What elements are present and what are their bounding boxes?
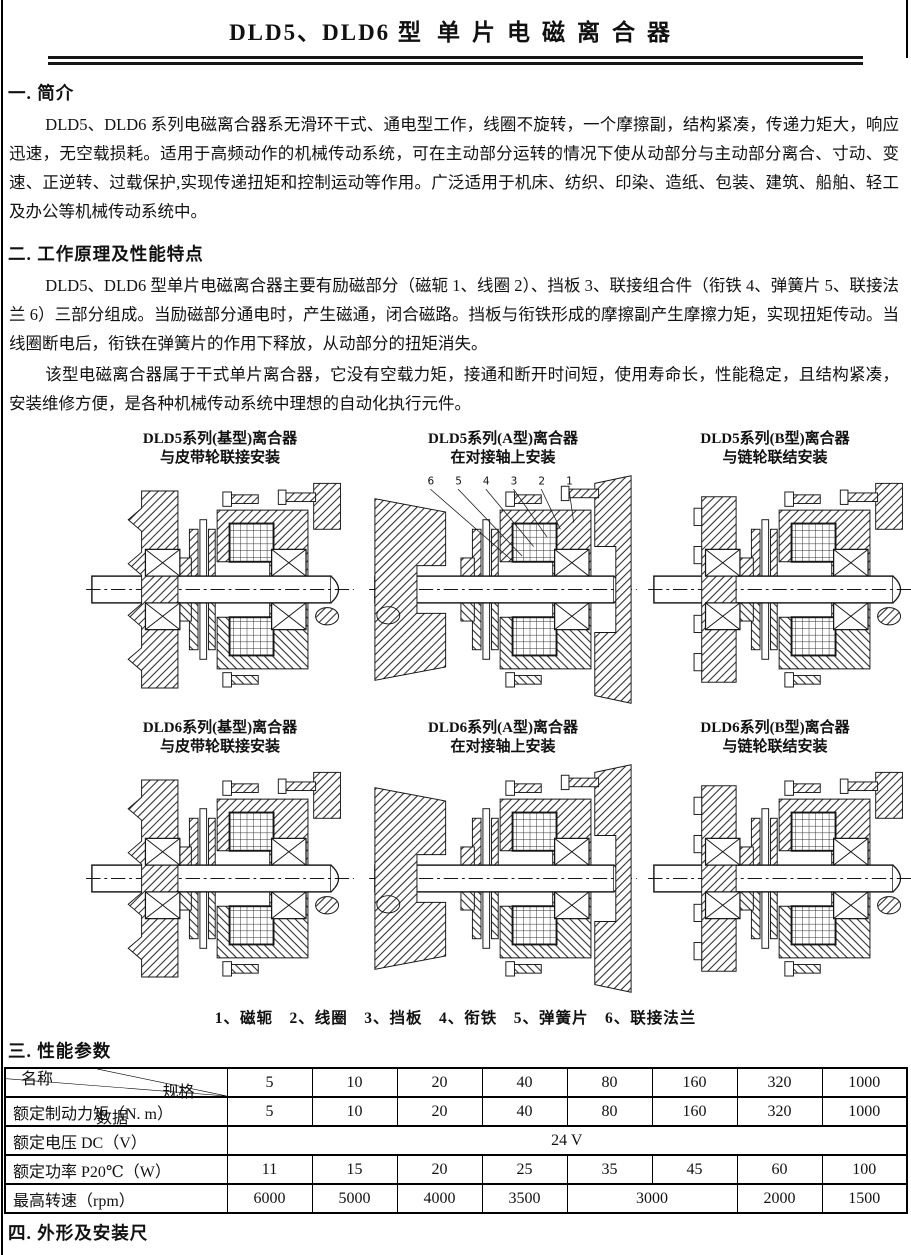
corner-label-name: 名称 [21,1065,53,1089]
row-label: 最高转速（rpm） [5,1184,227,1213]
table-cell: 5000 [312,1184,397,1213]
table-corner-cell: 规格 数据 名称 [5,1068,227,1097]
spec-column-header: 20 [397,1068,482,1097]
clutch-cross-section-shaft: 6 5 4 3 2 1 [369,470,637,709]
table-cell: 60 [737,1155,822,1184]
document-page: DLD5、DLD6 型单片电磁离合器 一. 简介 DLD5、DLD6 系列电磁离… [0,0,911,1255]
svg-text:4: 4 [483,475,490,487]
caption-line1: DLD6系列(基型)离合器 [82,719,358,738]
spec-column-header: 80 [567,1068,652,1097]
caption-line1: DLD6系列(B型)离合器 [648,719,902,738]
table-row-torque: 额定制动力矩（N. m） 5 10 20 40 80 160 320 1000 [5,1097,907,1126]
table-row-voltage: 额定电压 DC（V） 24 V [5,1126,907,1155]
clutch-cross-section-sprocket [648,759,911,998]
spec-column-header: 160 [652,1068,737,1097]
caption-line1: DLD5系列(B型)离合器 [648,430,902,449]
table-header-row: 规格 数据 名称 5 10 20 40 80 160 320 1000 [5,1068,907,1097]
figure-dld5-b: DLD5系列(B型)离合器 与链轮联结安装 [648,430,902,709]
table-row-power: 额定功率 P20℃（W） 11 15 20 25 35 45 60 100 [5,1155,907,1184]
title-divider [48,56,863,65]
page-right-border [906,0,908,58]
page-title: DLD5、DLD6 型单片电磁离合器 [0,0,911,47]
spec-column-header: 1000 [822,1068,907,1097]
corner-label-spec: 规格 [162,1078,194,1102]
figure-caption: DLD6系列(基型)离合器 与皮带轮联接安装 [82,719,358,757]
figure-caption: DLD5系列(A型)离合器 在对接轴上安装 [358,430,648,468]
table-cell: 35 [567,1155,652,1184]
table-cell: 10 [312,1097,397,1126]
table-cell: 45 [652,1155,737,1184]
caption-line2: 在对接轴上安装 [358,449,648,468]
page-left-border [1,0,3,1255]
table-cell: 2000 [737,1184,822,1213]
intro-paragraph: DLD5、DLD6 系列电磁离合器系无滑环干式、通电型工作，线圈不旋转，一个摩擦… [9,110,899,226]
table-cell: 80 [567,1097,652,1126]
figure-dld5-a: DLD5系列(A型)离合器 在对接轴上安装 6 5 4 3 [358,430,648,709]
clutch-cross-section-pulley [86,470,354,709]
corner-label-data: 数据 [96,1104,128,1128]
principle-paragraph-2: 该型电磁离合器属于干式单片离合器，它没有空载力矩，接通和断开时间短，使用寿命长，… [9,360,899,418]
table-cell: 100 [822,1155,907,1184]
clutch-cross-section-sprocket [648,470,911,709]
figure-caption: DLD6系列(B型)离合器 与链轮联结安装 [648,719,902,757]
section-heading-intro: 一. 简介 [8,80,911,105]
principle-paragraph-1: DLD5、DLD6 型单片电磁离合器主要有励磁部分（磁轭 1、线圈 2）、挡板 … [9,271,899,358]
table-cell: 15 [312,1155,397,1184]
svg-text:6: 6 [427,475,434,487]
svg-text:5: 5 [455,475,462,487]
caption-line1: DLD6系列(A型)离合器 [358,719,648,738]
section-heading-dimensions: 四. 外形及安装尺 [8,1220,911,1245]
table-cell: 320 [737,1097,822,1126]
svg-text:3: 3 [511,475,518,487]
table-cell: 20 [397,1097,482,1126]
table-cell-merged: 3000 [567,1184,737,1213]
caption-line2: 与链轮联结安装 [648,449,902,468]
row-label: 额定电压 DC（V） [5,1126,227,1155]
caption-line1: DLD5系列(A型)离合器 [358,430,648,449]
section-heading-params: 三. 性能参数 [8,1038,911,1063]
caption-line2: 与皮带轮联接安装 [82,449,358,468]
figure-dld5-base: DLD5系列(基型)离合器 与皮带轮联接安装 [82,430,358,709]
figure-dld6-base: DLD6系列(基型)离合器 与皮带轮联接安装 [82,719,358,998]
spec-column-header: 320 [737,1068,822,1097]
figures-grid: DLD5系列(基型)离合器 与皮带轮联接安装 DLD5系列(A型)离合器 在对接… [82,430,907,998]
spec-column-header: 40 [482,1068,567,1097]
table-cell: 40 [482,1097,567,1126]
table-cell: 160 [652,1097,737,1126]
table-row-speed: 最高转速（rpm） 6000 5000 4000 3500 3000 2000 … [5,1184,907,1213]
table-cell-merged: 24 V [227,1126,907,1155]
clutch-cross-section-pulley [86,759,354,998]
table-cell: 11 [227,1155,312,1184]
figure-caption: DLD6系列(A型)离合器 在对接轴上安装 [358,719,648,757]
title-name: 单片电磁离合器 [437,20,682,45]
figure-dld6-a: DLD6系列(A型)离合器 在对接轴上安装 [358,719,648,998]
figure-caption: DLD5系列(基型)离合器 与皮带轮联接安装 [82,430,358,468]
table-cell: 4000 [397,1184,482,1213]
part-number-labels: 6 5 4 3 2 1 [427,475,572,487]
figure-dld6-b: DLD6系列(B型)离合器 与链轮联结安装 [648,719,902,998]
section-heading-principle: 二. 工作原理及性能特点 [8,241,911,266]
performance-table: 规格 数据 名称 5 10 20 40 80 160 320 1000 额定制动… [4,1067,908,1214]
table-cell: 3500 [482,1184,567,1213]
caption-line2: 与链轮联结安装 [648,738,902,757]
table-cell: 20 [397,1155,482,1184]
figure-parts-legend: 1、磁轭 2、线圈 3、挡板 4、衔铁 5、弹簧片 6、联接法兰 [0,1006,911,1028]
spec-column-header: 5 [227,1068,312,1097]
table-cell: 1000 [822,1097,907,1126]
table-cell: 25 [482,1155,567,1184]
table-cell: 6000 [227,1184,312,1213]
table-cell: 1500 [822,1184,907,1213]
caption-line2: 与皮带轮联接安装 [82,738,358,757]
title-model: DLD5、DLD6 型 [229,20,423,45]
figure-caption: DLD5系列(B型)离合器 与链轮联结安装 [648,430,902,468]
row-label: 额定功率 P20℃（W） [5,1155,227,1184]
svg-text:2: 2 [538,475,545,487]
clutch-cross-section-shaft [369,759,637,998]
table-cell: 5 [227,1097,312,1126]
caption-line1: DLD5系列(基型)离合器 [82,430,358,449]
caption-line2: 在对接轴上安装 [358,738,648,757]
svg-text:1: 1 [566,475,573,487]
spec-column-header: 10 [312,1068,397,1097]
